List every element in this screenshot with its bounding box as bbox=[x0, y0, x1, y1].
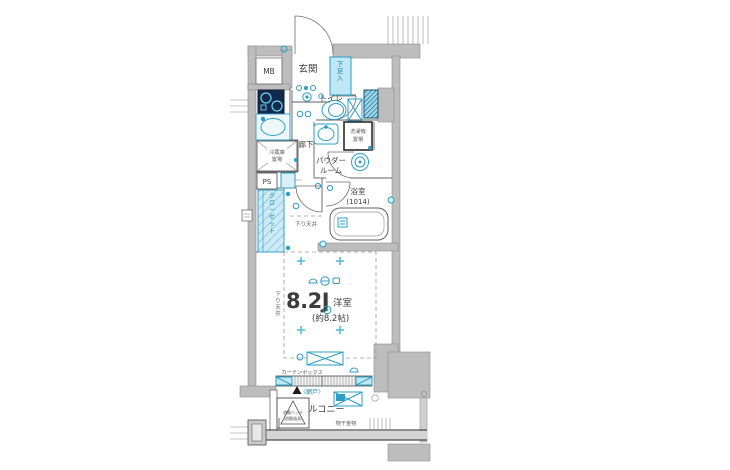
balcony-railing bbox=[258, 430, 427, 440]
water-heater bbox=[281, 173, 295, 188]
hatch-label-2: (避難器具) bbox=[283, 415, 303, 421]
screen-door-label: 〈網戸〉 bbox=[300, 388, 324, 396]
main-room: 8.2J 洋室 (約8.2帖) カーテンボックス bbox=[281, 252, 376, 376]
meter-box: MB bbox=[256, 58, 282, 84]
outdoor-unit bbox=[334, 392, 362, 406]
washer-space: 洗濯機 置場 bbox=[344, 122, 372, 150]
hatch-label-1: 避難ハッチ bbox=[283, 409, 303, 415]
mb-label: MB bbox=[263, 67, 275, 76]
floorplan-drawing: MB 玄関 下足入 トイレ bbox=[0, 0, 730, 470]
down-ceiling-mid-label: 下り天井 bbox=[295, 220, 318, 228]
bathroom: 浴室 (1014) bbox=[320, 182, 394, 247]
boundary-ticks-bottom-left bbox=[230, 427, 250, 439]
powder-label-2: ルーム bbox=[320, 166, 342, 175]
drain-pipe bbox=[248, 420, 266, 445]
laundry-label: 物干金物 bbox=[336, 419, 357, 427]
pipe-space: PS bbox=[257, 173, 302, 189]
bath-size-label: (1014) bbox=[346, 198, 370, 206]
ps-label: PS bbox=[263, 178, 272, 186]
kitchen bbox=[256, 90, 290, 140]
pipe-shaft-hatched bbox=[364, 90, 378, 118]
floorplan-page: MB 玄関 下足入 トイレ bbox=[0, 0, 730, 470]
closet: クローゼット bbox=[258, 190, 290, 252]
room-size-label: 8.2J bbox=[286, 289, 329, 313]
ceiling-fixtures bbox=[309, 277, 340, 285]
washer-label-1: 洗濯機 bbox=[350, 127, 366, 135]
shoe-box: 下足入 bbox=[330, 57, 351, 95]
boundary-ticks-top-right bbox=[388, 16, 428, 44]
fridge-label-1: 冷蔵庫 bbox=[269, 148, 285, 156]
evacuation-hatch: 避難ハッチ (避難器具) bbox=[277, 398, 309, 428]
fridge-label-2: 置場 bbox=[272, 155, 282, 163]
powder-label-1: パウダー bbox=[316, 155, 346, 165]
refrigerator-space: 冷蔵庫 置場 bbox=[257, 141, 297, 171]
intercom-box bbox=[242, 210, 252, 221]
down-ceiling-left-label: 下り天井 bbox=[275, 291, 281, 318]
closet-label: クローゼット bbox=[269, 193, 275, 235]
room-name-label: 洋室 bbox=[333, 297, 352, 309]
shoe-box-label: 下足入 bbox=[337, 60, 344, 82]
air-conditioner bbox=[297, 352, 358, 372]
washer-label-2: 置場 bbox=[353, 135, 363, 143]
drain-cap bbox=[372, 395, 378, 401]
curtain-box-label: カーテンボックス bbox=[281, 368, 322, 376]
genkan-label: 玄関 bbox=[298, 63, 317, 75]
room-size-note-label: (約8.2帖) bbox=[312, 313, 349, 324]
bath-label: 浴室 bbox=[351, 186, 366, 196]
hallway-label: 廊下 bbox=[299, 139, 314, 149]
